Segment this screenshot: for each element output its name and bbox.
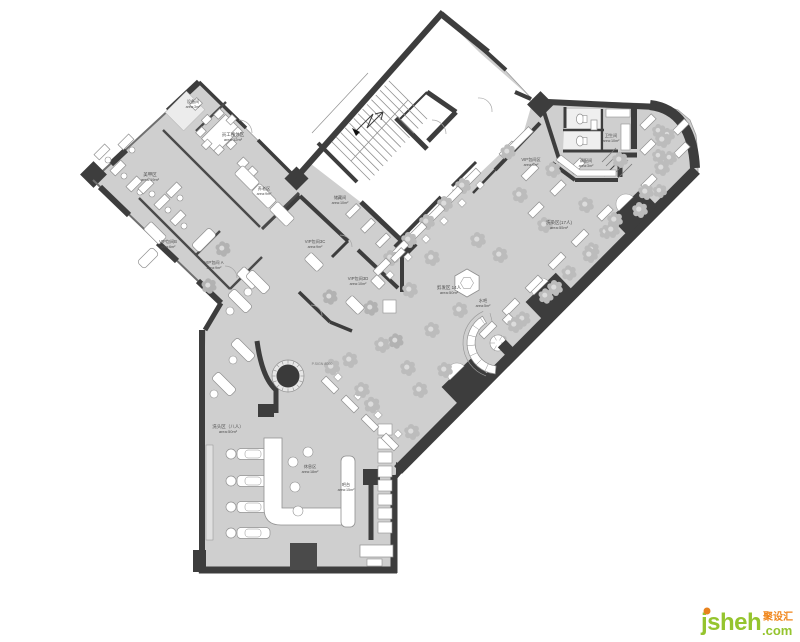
svg-text:area:10m²: area:10m² <box>332 201 350 205</box>
svg-text:area:9m²: area:9m² <box>308 245 324 249</box>
svg-text:area:9m²: area:9m² <box>524 163 540 167</box>
svg-text:area:55m²: area:55m² <box>550 225 569 230</box>
svg-text:area:9m²: area:9m² <box>257 192 273 196</box>
svg-text:area:50m²: area:50m² <box>440 290 459 295</box>
svg-text:area:10m²: area:10m² <box>350 282 368 286</box>
svg-text:area:9m²: area:9m² <box>207 266 223 270</box>
svg-text:area:19m²: area:19m² <box>141 177 160 182</box>
svg-text:水吧: 水吧 <box>479 297 488 303</box>
svg-text:area:10m²: area:10m² <box>603 139 621 143</box>
svg-text:P.SIGN 8000: P.SIGN 8000 <box>312 362 333 366</box>
svg-text:聚设汇: 聚设汇 <box>762 610 793 623</box>
svg-text:area:15m²: area:15m² <box>338 488 356 492</box>
svg-text:area:3m²: area:3m² <box>579 164 595 168</box>
svg-text:area:6m²: area:6m² <box>161 245 177 249</box>
svg-text:area:50m²: area:50m² <box>219 429 238 434</box>
svg-text:area:18m²: area:18m² <box>302 470 320 474</box>
svg-text:area:3m²: area:3m² <box>186 105 202 109</box>
svg-text:area:5m²: area:5m² <box>476 304 492 308</box>
svg-text:area:12m²: area:12m² <box>224 137 243 142</box>
svg-text:.com: .com <box>762 623 792 637</box>
